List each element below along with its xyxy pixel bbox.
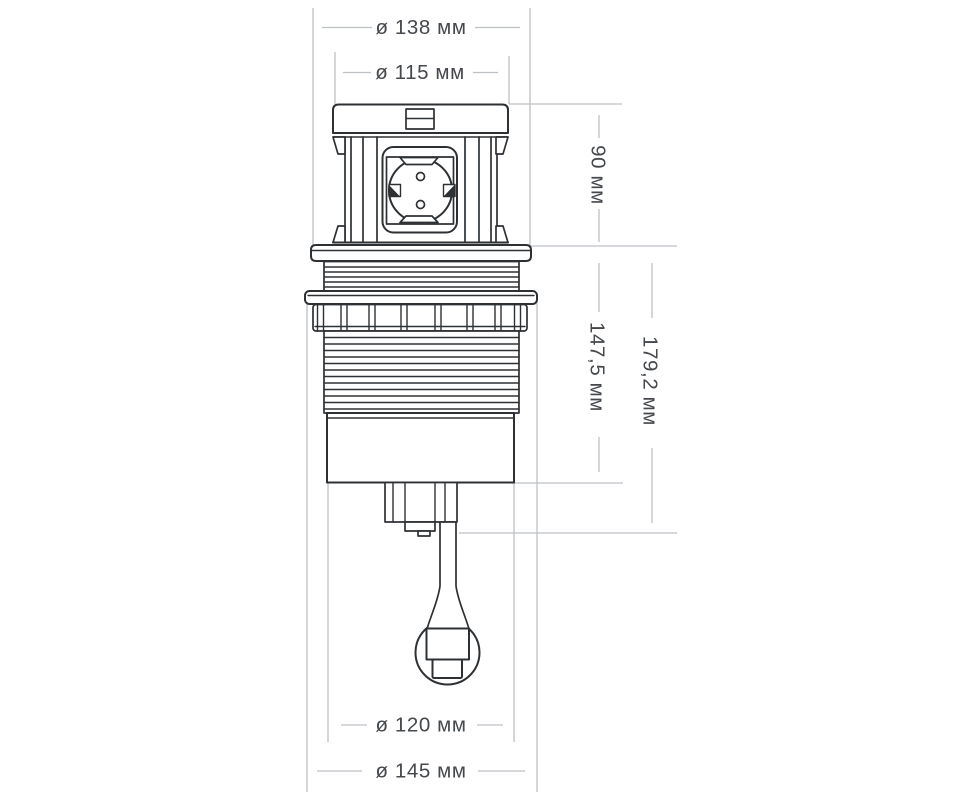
body-canister [327,413,514,483]
table-ring [311,245,531,261]
label-body-diameter: ø 120 мм [375,714,466,737]
head-tab-top-right [496,137,508,154]
plug-front-face [427,629,470,660]
connector-block [385,483,457,523]
socket-unit [305,105,537,685]
head-tab-bottom-left [333,226,345,243]
power-cable [427,522,469,629]
popup-socket-drawing: ø 138 мм ø 115 мм 90 мм 147,5 мм 179,2 м… [0,0,978,800]
head-tab-bottom-right [496,226,508,243]
head-tab-top-left [333,137,345,154]
connector-step [405,522,435,531]
label-head-height: 90 мм [587,145,610,205]
plug-tip [433,660,463,679]
earth-clip-bottom [400,216,438,223]
label-head-outer-diameter: ø 138 мм [375,16,466,39]
connector-nub [418,531,430,536]
label-total-length: 179,2 мм [639,336,662,426]
popup-head [333,105,508,243]
earth-clip-top [400,158,438,165]
label-flange-diameter: ø 145 мм [375,760,466,783]
label-head-inner-diameter: ø 115 мм [375,61,465,84]
technical-drawing-page: ø 138 мм ø 115 мм 90 мм 147,5 мм 179,2 м… [0,0,978,800]
label-body-length: 147,5 мм [586,322,609,412]
mounting-flange [305,291,537,304]
